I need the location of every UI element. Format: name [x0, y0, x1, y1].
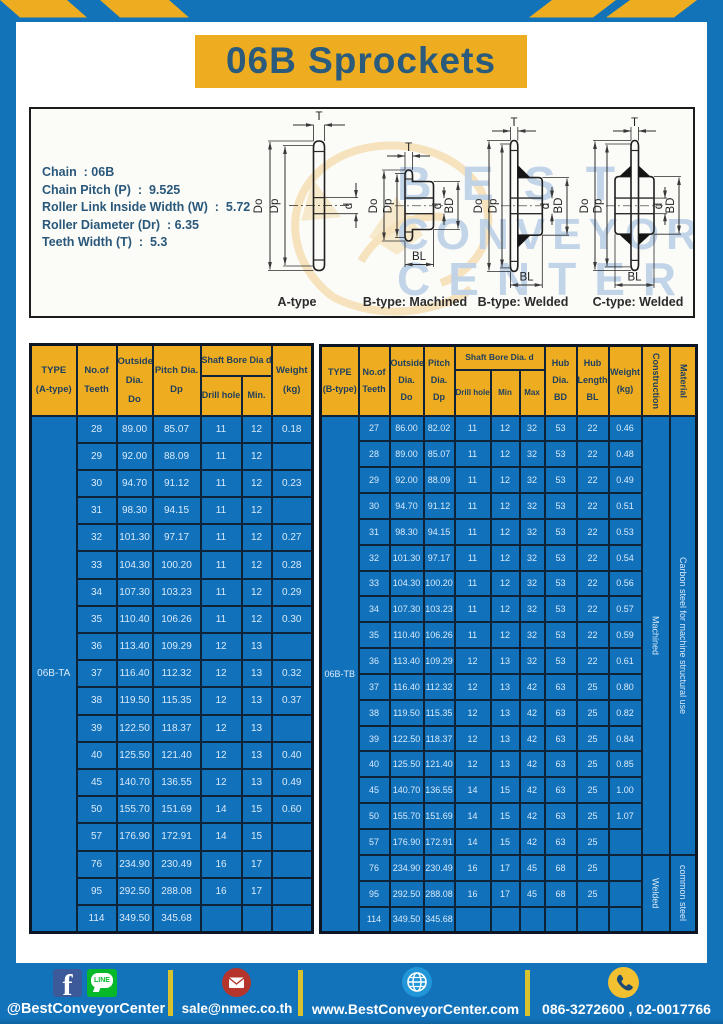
svg-text:BL: BL [627, 272, 642, 284]
svg-text:Dp: Dp [593, 199, 605, 214]
svg-text:Dp: Dp [488, 199, 500, 214]
svg-text:B-type: Machined: B-type: Machined [363, 295, 467, 309]
svg-text:T: T [405, 142, 412, 154]
svg-text:A-type: A-type [278, 295, 317, 309]
svg-text:B-type: Welded: B-type: Welded [478, 295, 569, 309]
svg-text:T: T [510, 117, 517, 129]
svg-text:Do: Do [368, 199, 380, 214]
svg-text:BD: BD [553, 198, 565, 214]
svg-text:d: d [540, 203, 552, 209]
svg-text:d: d [432, 203, 444, 209]
svg-text:Do: Do [473, 199, 485, 214]
svg-text:BL: BL [519, 272, 534, 284]
svg-text:BD: BD [665, 198, 677, 214]
svg-text:Do: Do [253, 199, 265, 214]
svg-text:T: T [631, 117, 638, 129]
svg-text:Dp: Dp [269, 199, 281, 214]
svg-text:BD: BD [444, 198, 456, 214]
svg-text:T: T [315, 111, 322, 123]
svg-text:Dp: Dp [383, 199, 395, 214]
svg-text:d: d [653, 203, 665, 209]
svg-text:C-type: Welded: C-type: Welded [593, 295, 684, 309]
svg-text:d: d [343, 203, 355, 209]
svg-text:Do: Do [579, 199, 591, 214]
svg-text:BL: BL [412, 251, 427, 263]
